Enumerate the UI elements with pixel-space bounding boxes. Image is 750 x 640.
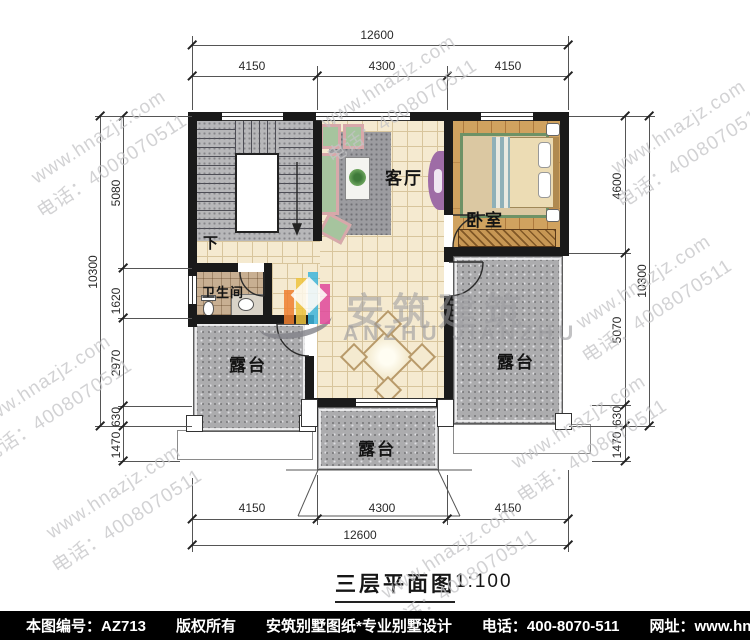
stair-flight-left xyxy=(197,129,235,233)
wall-left xyxy=(188,112,197,276)
bed-blanket xyxy=(492,137,510,208)
window-top-living xyxy=(316,112,410,121)
dim-bottom-seg-3: 4150 xyxy=(478,501,538,515)
dim-right-seg-4: 1470 xyxy=(610,420,624,470)
roof-diagonal-left xyxy=(298,470,318,516)
toilet-bowl xyxy=(203,301,214,316)
column xyxy=(555,413,572,430)
dim-line xyxy=(123,116,124,461)
window-top-stair xyxy=(222,112,283,121)
watermark: www.hnazjz.com电话：4008070511 xyxy=(605,69,750,210)
stair-void xyxy=(235,153,279,233)
tv-niche-inner xyxy=(434,169,442,193)
footer-website: 网址：www.hnazjz.com xyxy=(649,615,750,636)
watermark-line1: www.hnazjz.com xyxy=(0,331,115,433)
dim-top-seg-2: 4300 xyxy=(352,59,412,73)
watermark-line1: www.hnazjz.com xyxy=(28,86,170,188)
wall xyxy=(283,112,316,121)
dim-extension xyxy=(568,470,569,552)
door-opening-bedroom xyxy=(444,215,453,247)
dim-left-seg-5: 1470 xyxy=(109,420,123,470)
armchair-top-1 xyxy=(320,124,341,149)
plant xyxy=(349,169,366,186)
dim-right-seg-2: 5070 xyxy=(610,305,624,355)
drawing-title: 三层平面图 xyxy=(335,568,455,603)
wall-right xyxy=(560,112,569,256)
dim-line xyxy=(649,116,650,426)
watermark-line2: 电话：4008070511 xyxy=(611,96,750,218)
wall xyxy=(410,112,481,121)
column xyxy=(186,415,203,432)
label-living: 客厅 xyxy=(385,164,423,189)
footer-company: 安筑别墅图纸*专业别墅设计 xyxy=(266,615,452,636)
dim-line xyxy=(192,76,569,77)
wall-bedroom-bottom xyxy=(444,247,569,256)
dim-left-total: 10300 xyxy=(86,247,100,297)
column xyxy=(437,399,454,427)
wall-living-bedroom xyxy=(444,121,453,215)
label-bedroom: 卧室 xyxy=(466,206,504,231)
wall-bath-top xyxy=(188,263,238,272)
stair-flight-right xyxy=(279,129,313,233)
drawing-scale: 1:100 xyxy=(455,571,513,593)
dim-right-total: 10300 xyxy=(635,256,649,306)
dim-line xyxy=(625,116,626,461)
watermark: www.hnazjz.com电话：4008070511 xyxy=(570,224,740,365)
dim-left-seg-1: 5080 xyxy=(109,168,123,218)
roof-diagonal-right xyxy=(438,470,460,516)
pillow-1 xyxy=(538,142,551,168)
dim-line xyxy=(192,545,569,546)
dim-top-total: 12600 xyxy=(347,28,407,42)
dim-left-seg-3: 2970 xyxy=(109,338,123,388)
window-bathroom xyxy=(188,276,197,304)
dim-extension xyxy=(95,116,192,117)
dim-extension xyxy=(569,116,655,117)
column xyxy=(301,399,318,427)
label-terrace-left: 露台 xyxy=(229,351,267,376)
footer-copyright: 版权所有 xyxy=(176,615,236,636)
dim-bottom-seg-1: 4150 xyxy=(222,501,282,515)
dim-top-seg-1: 4150 xyxy=(222,59,282,73)
stair-flight-top xyxy=(235,121,279,153)
window-top-bedroom xyxy=(481,112,533,121)
dim-extension xyxy=(118,406,192,407)
dim-extension xyxy=(118,268,192,269)
dim-left-seg-2: 1620 xyxy=(109,276,123,326)
dim-bottom-seg-2: 4300 xyxy=(352,501,412,515)
footer-bar: 本图编号：AZ713 版权所有 安筑别墅图纸*专业别墅设计 电话：400-807… xyxy=(0,611,750,640)
dim-right-seg-1: 4600 xyxy=(610,161,624,211)
dim-extension xyxy=(118,461,180,462)
headboard xyxy=(553,137,559,208)
terrace-door-bottom xyxy=(356,398,436,407)
dim-top-seg-3: 4150 xyxy=(478,59,538,73)
nightstand-2 xyxy=(546,209,560,222)
wall-stair-divider xyxy=(313,121,322,241)
armchair-top-2 xyxy=(343,124,364,149)
dim-line xyxy=(192,45,569,46)
floor-plan-page: 客厅 卧室 卫生间 下 露台 露台 露台 12600 4150 4300 415… xyxy=(0,0,750,640)
dim-extension xyxy=(118,318,192,319)
footer-phone: 电话：400-8070-511 xyxy=(482,615,620,636)
dim-bottom-total: 12600 xyxy=(330,528,390,542)
eave-left xyxy=(177,430,313,460)
footer-doc-no: 本图编号：AZ713 xyxy=(26,615,146,636)
label-terrace-right: 露台 xyxy=(497,348,535,373)
logo-mark xyxy=(282,272,340,328)
watermark-line2: 电话：4008070511 xyxy=(576,251,740,373)
watermark-line2: 电话：4008070511 xyxy=(46,461,210,583)
dim-line xyxy=(100,116,101,426)
door-opening-bathroom xyxy=(238,263,264,272)
pillow-2 xyxy=(538,172,551,198)
label-bathroom: 卫生间 xyxy=(202,282,244,301)
label-terrace-bottom: 露台 xyxy=(358,435,396,460)
wardrobe xyxy=(458,229,556,247)
label-stairs-down: 下 xyxy=(203,232,220,253)
logo-text-en: ANZHU JIANZHU xyxy=(343,322,578,346)
watermark-line1: www.hnazjz.com xyxy=(608,76,750,178)
nightstand-1 xyxy=(546,123,560,136)
dim-line xyxy=(192,519,569,520)
